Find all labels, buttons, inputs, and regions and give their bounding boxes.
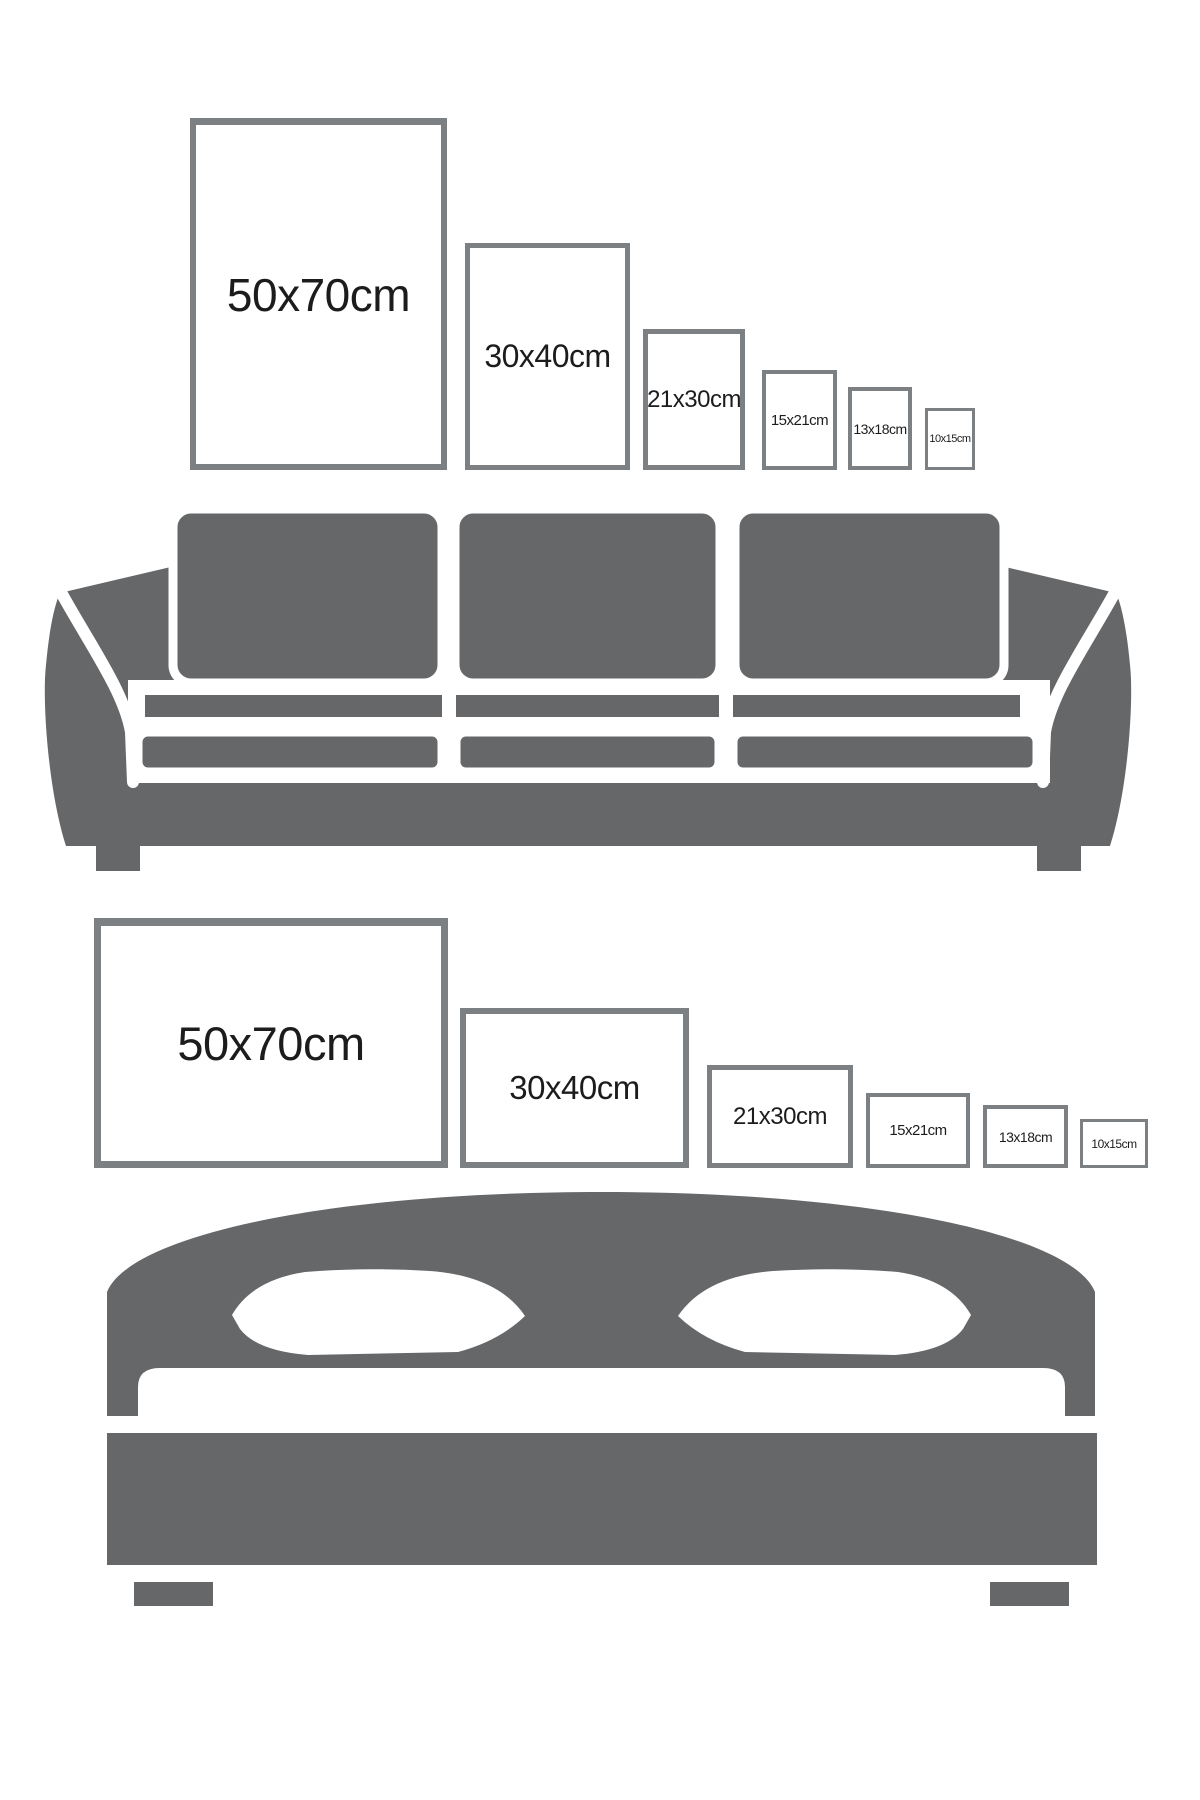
size-label: 50x70cm <box>177 1016 364 1071</box>
size-label: 15x21cm <box>771 412 828 429</box>
size-label: 21x30cm <box>733 1103 827 1131</box>
size-frame-50x70-landscape: 50x70cm <box>94 918 448 1168</box>
poster-size-guide: 50x70cm 30x40cm 21x30cm 15x21cm 13x18cm … <box>0 0 1200 1800</box>
size-label: 30x40cm <box>484 338 610 375</box>
size-frame-30x40-landscape: 30x40cm <box>460 1008 689 1168</box>
size-label: 15x21cm <box>889 1122 946 1139</box>
size-frame-15x21-portrait: 15x21cm <box>762 370 837 470</box>
size-label: 21x30cm <box>647 386 741 414</box>
size-label: 50x70cm <box>227 268 410 322</box>
size-frame-10x15-landscape: 10x15cm <box>1080 1119 1148 1168</box>
size-label: 30x40cm <box>509 1069 639 1107</box>
size-label: 10x15cm <box>929 433 970 445</box>
size-frame-50x70-portrait: 50x70cm <box>190 118 447 470</box>
bed-icon <box>0 1180 1200 1610</box>
size-frame-13x18-landscape: 13x18cm <box>983 1105 1068 1168</box>
size-label: 10x15cm <box>1091 1137 1136 1151</box>
sofa-icon <box>0 480 1200 920</box>
size-frame-10x15-portrait: 10x15cm <box>925 408 975 470</box>
size-frame-21x30-landscape: 21x30cm <box>707 1065 853 1168</box>
size-frame-15x21-landscape: 15x21cm <box>866 1093 970 1168</box>
size-frame-13x18-portrait: 13x18cm <box>848 387 912 470</box>
size-label: 13x18cm <box>999 1129 1052 1145</box>
size-frame-30x40-portrait: 30x40cm <box>465 243 630 470</box>
size-label: 13x18cm <box>853 421 906 437</box>
size-frame-21x30-portrait: 21x30cm <box>643 329 745 470</box>
